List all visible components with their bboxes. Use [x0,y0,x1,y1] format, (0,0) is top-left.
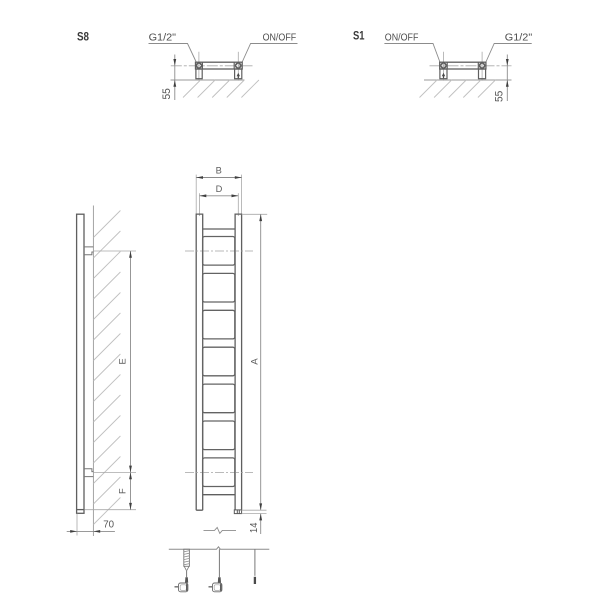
svg-text:B: B [216,165,222,175]
svg-text:S1: S1 [353,29,365,43]
svg-text:G1/2": G1/2" [505,33,533,44]
svg-text:ON/OFF: ON/OFF [385,33,419,44]
svg-text:70: 70 [103,518,114,530]
svg-text:A: A [250,358,261,365]
svg-text:G1/2": G1/2" [149,33,177,44]
svg-text:E: E [118,358,128,364]
svg-text:D: D [216,184,223,194]
svg-text:F: F [118,488,128,494]
svg-text:55: 55 [494,91,506,102]
svg-text:55: 55 [161,88,173,99]
svg-text:ON/OFF: ON/OFF [263,33,297,44]
svg-text:14: 14 [248,522,260,533]
svg-text:S8: S8 [77,29,89,43]
